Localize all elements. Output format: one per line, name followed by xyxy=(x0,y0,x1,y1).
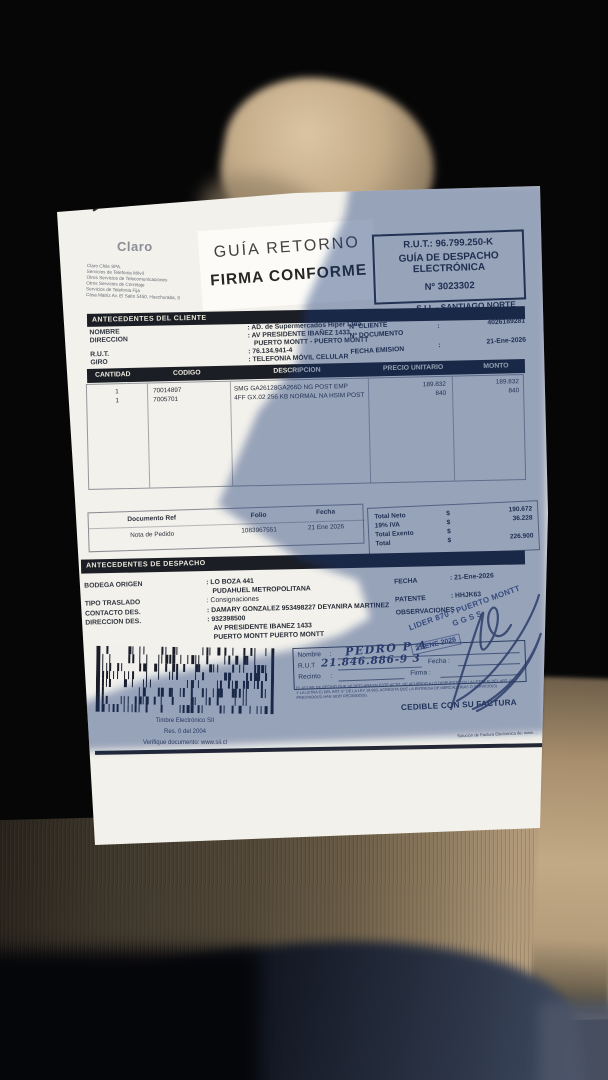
receiver-nombre-label: Nombre xyxy=(297,651,321,659)
colon: : xyxy=(437,323,440,330)
timbre-line2: Res. 0 del 2004 xyxy=(111,727,259,738)
column-divider xyxy=(147,384,150,488)
return-stamp-line2: FIRMA CONFORME xyxy=(200,261,377,291)
dispatch-details: BODEGA ORIGEN : LO BOZA 441 PUDAHUEL MET… xyxy=(84,570,416,649)
column-divider xyxy=(230,382,233,486)
item-row-monto: 189.832 xyxy=(449,378,519,387)
bottom-right-fabric xyxy=(540,1002,608,1080)
return-stamp-line1: GUÍA RETORNO xyxy=(198,233,375,263)
bodega-value1: : LO BOZA 441 xyxy=(206,578,254,586)
client-number-label: Nº CLIENTE xyxy=(349,322,388,331)
fill-in-line xyxy=(338,678,404,681)
iva-label: 19% IVA xyxy=(375,521,400,529)
iva-value: 36.228 xyxy=(453,514,533,525)
bodega-label: BODEGA ORIGEN xyxy=(84,581,142,590)
currency-symbol: $ xyxy=(447,537,451,544)
footer-provider-note: Solución de Factura Electrónica de: www… xyxy=(385,730,537,742)
ref-header-folio: Folio xyxy=(229,511,289,520)
client-giro-label: GIRO xyxy=(90,359,108,367)
ref-fecha-value: 21 Ene 2026 xyxy=(296,523,356,532)
timbre-line1: Timbre Electrónico SII xyxy=(111,716,259,727)
ref-tipo-value: Nota de Pedido xyxy=(97,530,207,540)
ref-header-fecha: Fecha xyxy=(295,508,355,517)
client-rut-value: : 76.134.941-4 xyxy=(248,347,292,355)
dispatch-fecha-label: FECHA xyxy=(394,577,418,585)
ref-header-documento: Documento Ref xyxy=(97,514,207,524)
pen-swoosh-mark xyxy=(91,199,137,213)
direccion-destino-value2: AV PRESIDENTE IBANEZ 1433 xyxy=(213,622,312,632)
ref-folio-value: 1083967551 xyxy=(229,526,289,535)
document-number: Nº 3023302 xyxy=(376,278,524,294)
item-row-codigo: 7005701 xyxy=(153,395,178,403)
client-name-label: NOMBRE xyxy=(89,328,119,336)
patente-label: PATENTE xyxy=(395,595,426,604)
tipo-traslado-value: : Consignaciones xyxy=(207,596,259,604)
emitter-rut: R.U.T.: 96.799.250-K xyxy=(374,235,522,251)
totals-box: Total Neto $ 190.672 19% IVA $ 36.228 To… xyxy=(367,500,540,558)
header-monto: MONTO xyxy=(473,359,519,374)
exento-label: Total Exento xyxy=(375,530,414,539)
document-number-label: Nº DOCUMENTO xyxy=(349,330,403,340)
timbre-caption: Timbre Electrónico SII Res. 0 del 2004 V… xyxy=(111,716,259,749)
client-address-label: DIRECCION xyxy=(90,336,128,344)
total-label: Total xyxy=(375,540,390,548)
direccion-destino-value3: PUERTO MONTT PUERTO MONTT xyxy=(214,631,325,641)
colon: : xyxy=(438,342,441,349)
timbre-line3: Verifique documento: www.sii.cl xyxy=(111,738,259,749)
client-number-value: 4026189281 xyxy=(445,318,525,329)
emission-date-label: FECHA EMISION xyxy=(350,346,404,356)
item-row-monto: 840 xyxy=(449,387,519,396)
claro-logo: Claro xyxy=(117,239,153,254)
items-table-body: 1 70014897 SMG GA26128GA266D NG POST EMP… xyxy=(86,374,526,490)
sii-pdf417-barcode xyxy=(96,646,275,714)
contacto-value: : DAMARY GONZALEZ 953498227 DEYANIRA MAR… xyxy=(207,602,389,614)
item-row-codigo: 70014897 xyxy=(153,387,182,395)
item-row-descripcion: 4FF GX.02 256 KB NORMAL NA HSIM POST xyxy=(234,391,364,401)
header-cantidad: CANTIDAD xyxy=(95,368,131,383)
colon: : xyxy=(330,673,332,680)
direccion-destino-label: DIRECCION DES. xyxy=(85,618,141,627)
receiver-rut-label: R.U.T xyxy=(298,662,315,670)
contacto-label: CONTACTO DES. xyxy=(85,609,141,618)
reference-document-box: Documento Ref Folio Fecha Nota de Pedido… xyxy=(87,504,364,553)
tipo-traslado-label: TIPO TRASLADO xyxy=(85,599,141,608)
direccion-destino-value1: : 932398500 xyxy=(207,615,245,623)
bodega-value2: PUDAHUEL METROPOLITANA xyxy=(212,585,310,595)
rut-header-box: R.U.T.: 96.799.250-K GUÍA DE DESPACHO EL… xyxy=(372,229,526,304)
currency-symbol: $ xyxy=(447,519,451,526)
currency-symbol: $ xyxy=(447,528,451,535)
item-row-precio: 840 xyxy=(368,390,446,399)
signature-scribble xyxy=(433,581,547,717)
receiver-firma-label: Firma : xyxy=(410,669,431,677)
emission-date-value: 21-Ene-2026 xyxy=(446,336,526,347)
return-stamp: GUÍA RETORNO FIRMA CONFORME xyxy=(197,219,378,311)
currency-symbol: $ xyxy=(446,510,450,517)
item-row-precio: 189.832 xyxy=(368,381,446,390)
total-value: 226.900 xyxy=(453,532,533,543)
header-descripcion: DESCRIPCION xyxy=(252,363,342,379)
bottom-left-shadow xyxy=(0,950,260,1080)
dispatch-section-header: ANTECEDENTES DE DESPACHO xyxy=(81,550,525,573)
item-row-cantidad: 1 xyxy=(87,396,147,404)
header-precio-unitario: PRECIO UNITARIO xyxy=(383,361,444,376)
item-row-cantidad: 1 xyxy=(87,388,147,396)
receiver-recinto-label: Recinto xyxy=(298,673,321,681)
total-neto-label: Total Neto xyxy=(374,512,406,520)
dispatch-guide-document: Claro Claro Chile SPA. Servicios de Tele… xyxy=(45,183,548,848)
car-interior-photo: Claro Claro Chile SPA. Servicios de Tele… xyxy=(0,0,608,1080)
client-rut-label: R.U.T. xyxy=(90,351,109,359)
header-codigo: CODIGO xyxy=(173,366,201,381)
